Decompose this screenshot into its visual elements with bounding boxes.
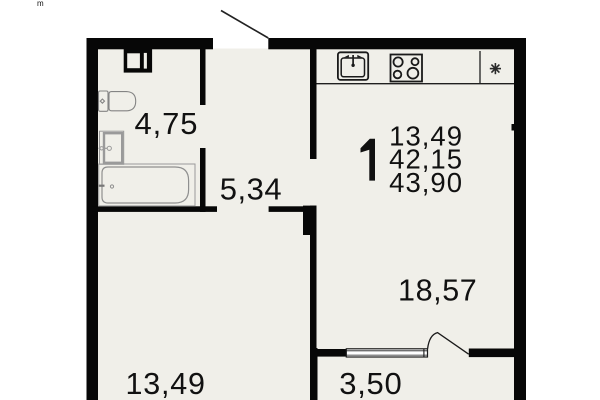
svg-text:3,50: 3,50 bbox=[339, 366, 402, 400]
svg-text:43,90: 43,90 bbox=[389, 167, 463, 198]
svg-text:18,57: 18,57 bbox=[398, 274, 477, 308]
svg-text:5,34: 5,34 bbox=[220, 171, 282, 206]
svg-text:m: m bbox=[37, 0, 44, 8]
svg-text:13,49: 13,49 bbox=[126, 367, 206, 400]
svg-text:4,75: 4,75 bbox=[135, 106, 199, 141]
